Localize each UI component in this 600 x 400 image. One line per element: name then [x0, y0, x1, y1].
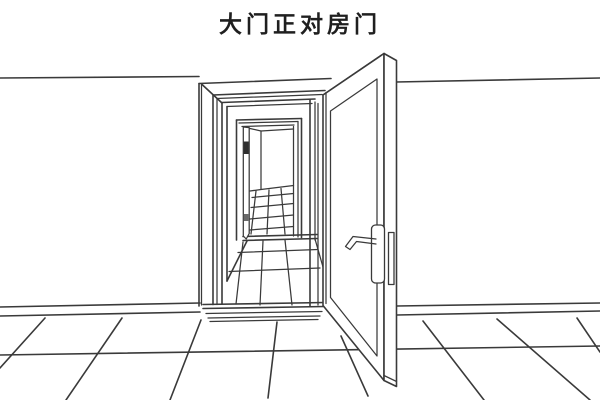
threshold	[203, 303, 325, 322]
open-door	[323, 54, 397, 387]
door-frame	[199, 79, 331, 307]
baseboard	[0, 303, 600, 316]
door-lock-faceplate	[389, 233, 395, 285]
page: { "title": "大门正对房门", "colors": { "backgr…	[0, 0, 600, 400]
room-floor	[250, 186, 294, 235]
bedroom-door	[243, 127, 249, 239]
inner-door-handle	[244, 142, 249, 155]
door-edge-face	[384, 54, 397, 387]
handle-backplate	[372, 225, 385, 283]
line-art-illustration	[0, 0, 600, 400]
door-front-face	[323, 54, 384, 381]
floor-tiles	[0, 318, 600, 400]
